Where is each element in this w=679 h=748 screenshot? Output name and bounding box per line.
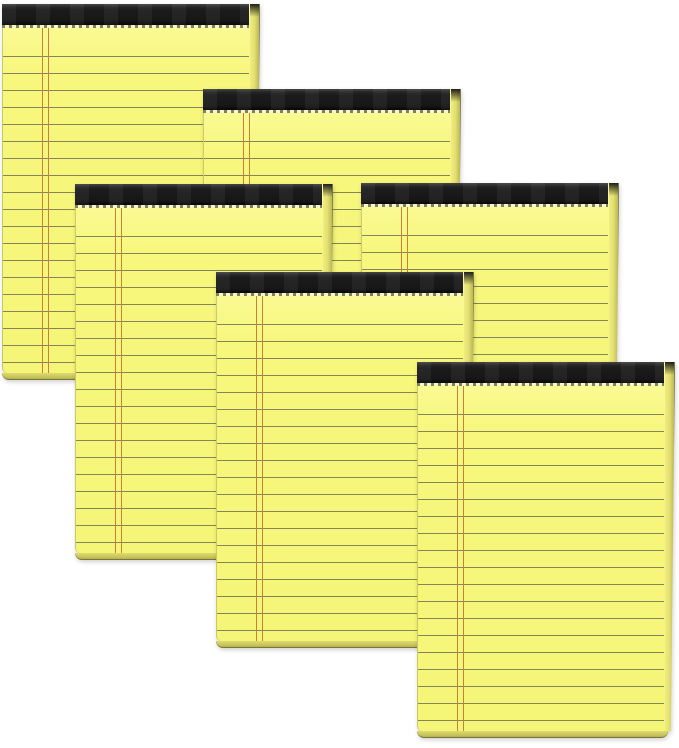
- pad-paper: [417, 362, 665, 731]
- perforation-line: [75, 205, 322, 208]
- pad-bottom-page-edge: [417, 731, 668, 738]
- pad-binding-strip: [216, 272, 463, 293]
- ruled-lines: [418, 414, 664, 729]
- margin-line: [42, 28, 49, 373]
- perforation-line: [203, 110, 450, 113]
- pad-binding-strip: [361, 183, 608, 204]
- pad-side-page-edge: [664, 362, 675, 731]
- perforation-line: [2, 25, 249, 28]
- margin-line: [115, 208, 122, 553]
- pad-6: [417, 362, 674, 738]
- perforation-line: [361, 204, 608, 207]
- margin-line: [256, 296, 263, 641]
- pad-binding-strip: [417, 362, 664, 383]
- margin-line: [457, 386, 464, 731]
- product-image-canvas: [0, 0, 679, 748]
- pad-binding-strip: [203, 89, 450, 110]
- pad-binding-strip: [2, 4, 249, 25]
- pad-binding-strip: [75, 184, 322, 205]
- perforation-line: [417, 383, 664, 386]
- perforation-line: [216, 293, 463, 296]
